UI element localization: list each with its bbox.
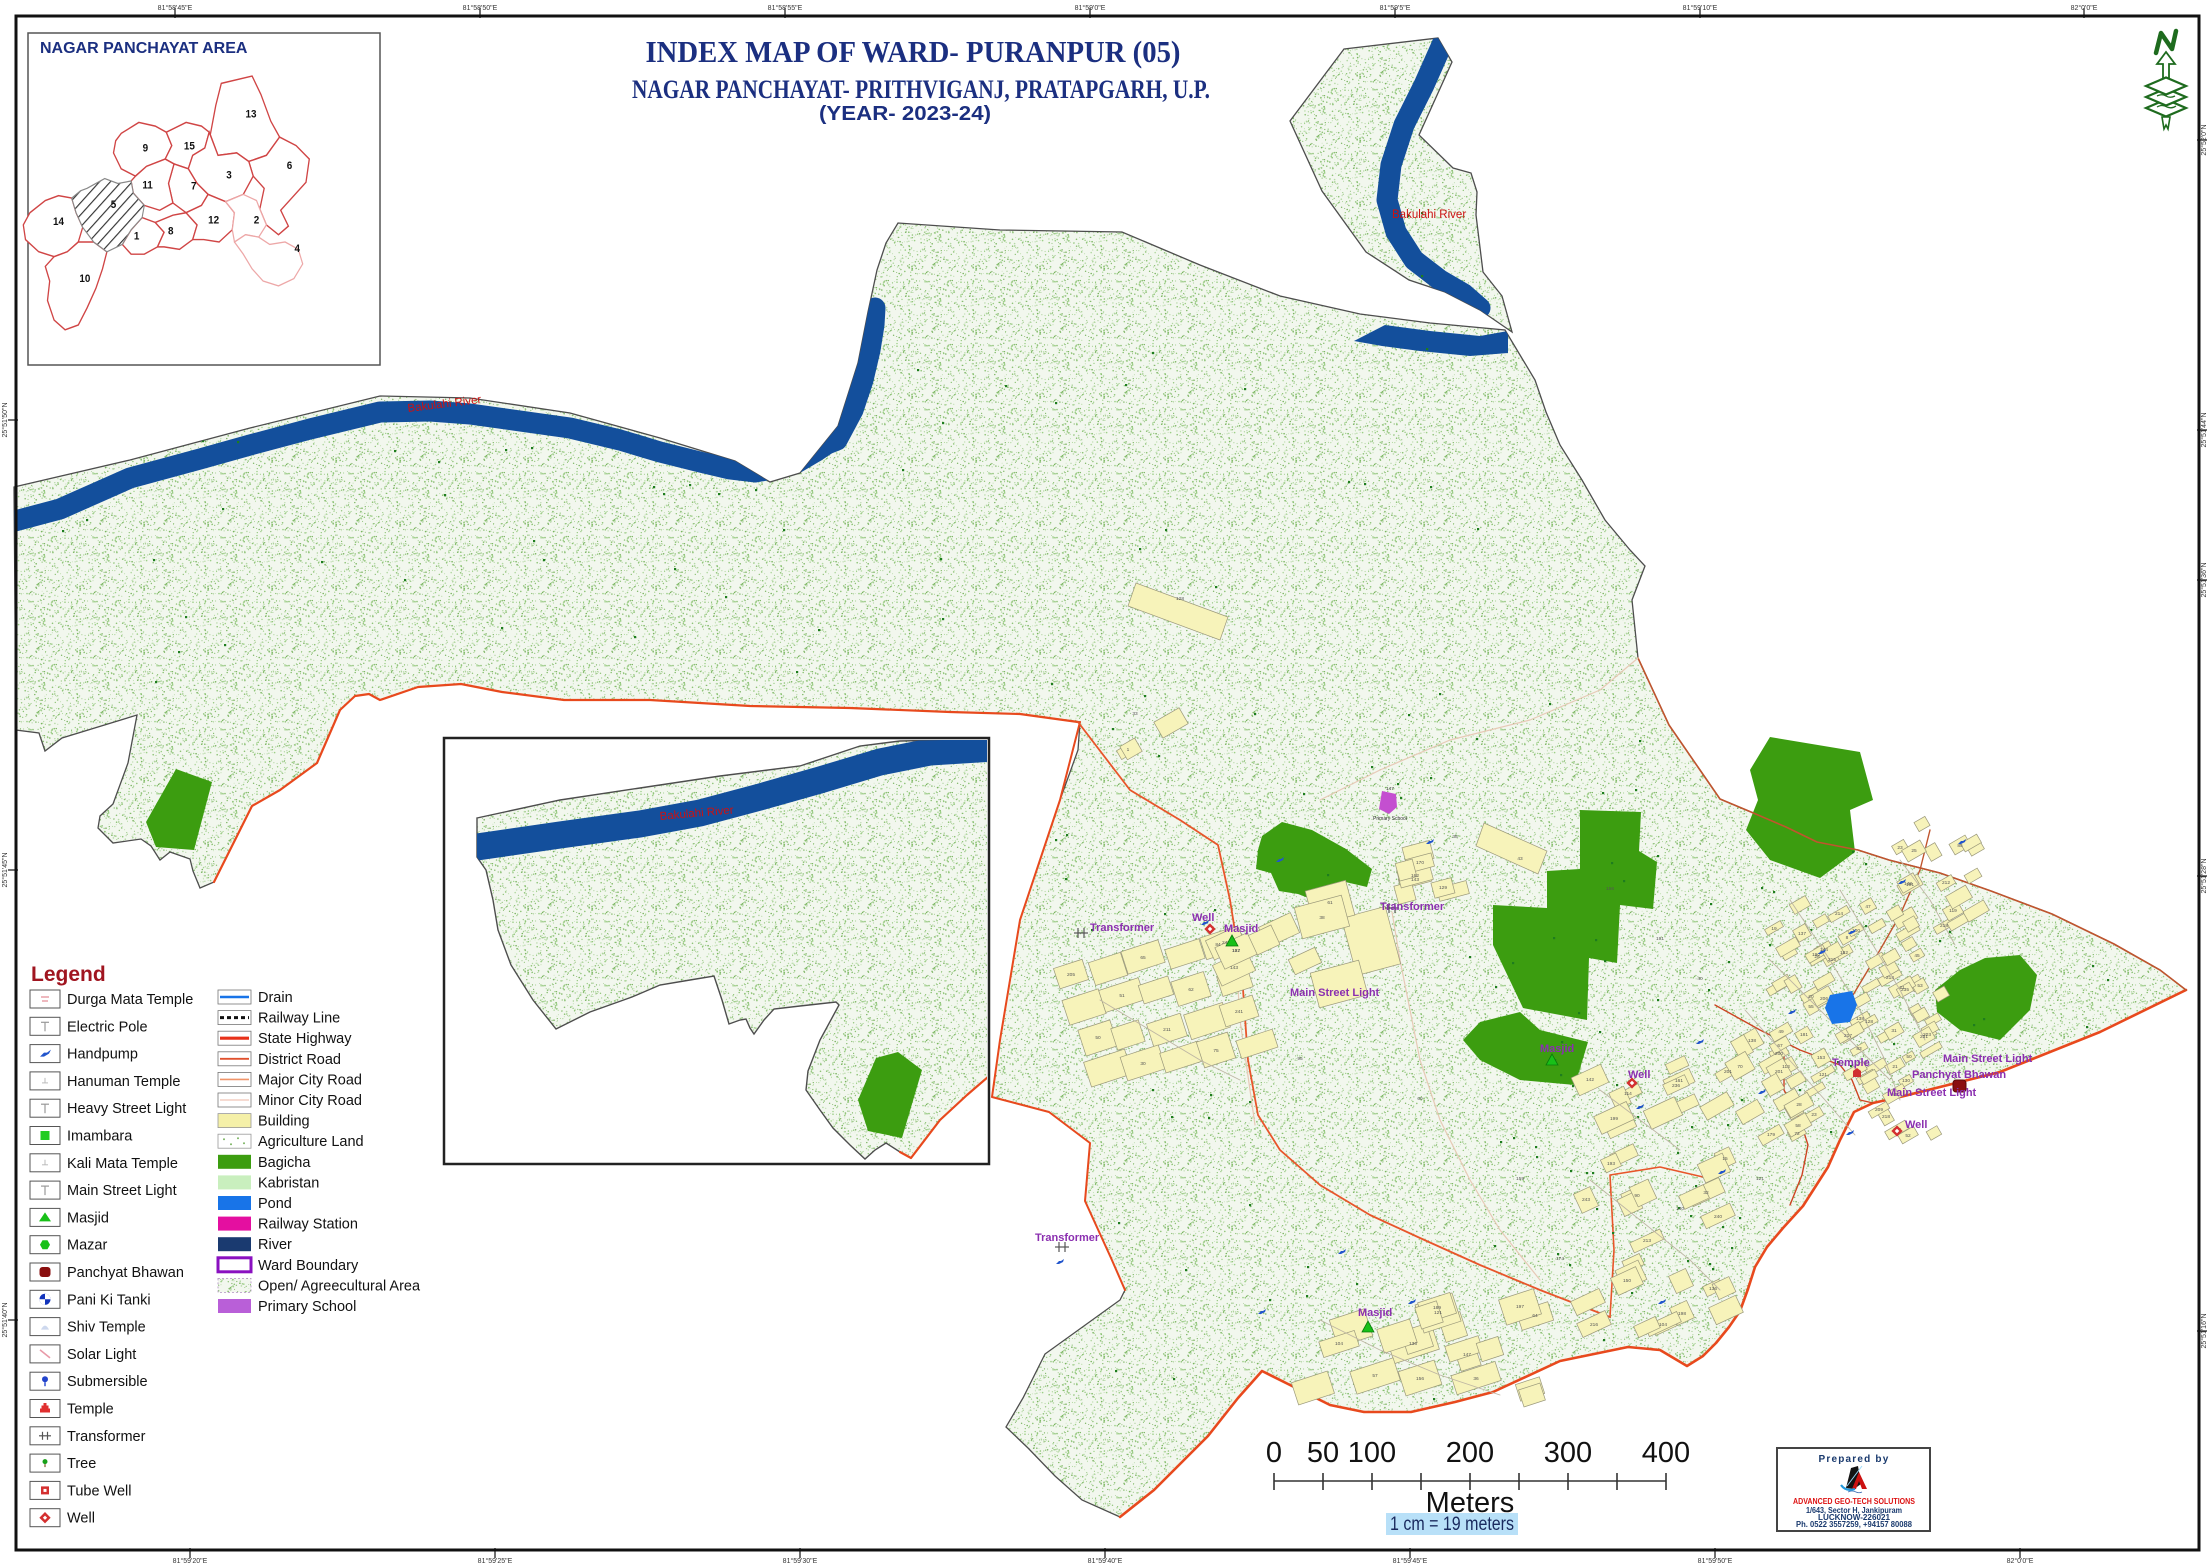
- svg-text:Submersible: Submersible: [67, 1374, 148, 1390]
- svg-text:81°59'20"E: 81°59'20"E: [173, 1557, 208, 1564]
- svg-text:NAGAR PANCHAYAT AREA: NAGAR PANCHAYAT AREA: [40, 40, 248, 57]
- svg-text:INDEX MAP OF WARD- PURANPUR (0: INDEX MAP OF WARD- PURANPUR (05): [646, 34, 1181, 69]
- svg-text:23: 23: [1897, 845, 1903, 851]
- svg-text:52: 52: [1905, 1133, 1911, 1139]
- svg-text:147: 147: [1386, 786, 1394, 792]
- svg-text:61: 61: [1327, 900, 1333, 906]
- svg-text:157: 157: [1232, 948, 1240, 954]
- svg-text:23: 23: [1811, 1112, 1817, 1118]
- svg-text:198: 198: [1678, 1311, 1686, 1317]
- svg-text:38: 38: [1452, 834, 1458, 840]
- svg-text:189: 189: [1433, 1305, 1441, 1311]
- svg-text:Well: Well: [67, 1511, 95, 1527]
- svg-text:193: 193: [1607, 1161, 1615, 1167]
- svg-text:128: 128: [1176, 596, 1184, 602]
- svg-text:20: 20: [1808, 994, 1814, 1000]
- svg-text:136: 136: [1709, 1286, 1717, 1292]
- svg-text:153: 153: [1817, 1055, 1825, 1061]
- svg-text:1 cm = 19 meters: 1 cm = 19 meters: [1390, 1514, 1514, 1535]
- svg-text:43: 43: [1517, 856, 1523, 862]
- svg-text:Masjid: Masjid: [67, 1210, 109, 1226]
- svg-text:Agriculture Land: Agriculture Land: [258, 1134, 364, 1150]
- svg-text:181: 181: [1800, 1032, 1808, 1038]
- svg-text:Electric Pole: Electric Pole: [67, 1019, 148, 1035]
- svg-text:156: 156: [1606, 886, 1614, 892]
- svg-text:Hanuman Temple: Hanuman Temple: [67, 1074, 180, 1090]
- svg-text:84: 84: [1215, 942, 1221, 948]
- svg-text:243: 243: [1582, 1197, 1590, 1203]
- svg-text:47: 47: [1865, 904, 1871, 910]
- svg-text:58: 58: [1795, 1123, 1801, 1129]
- svg-text:143: 143: [1230, 965, 1238, 971]
- svg-text:104: 104: [1659, 1322, 1667, 1328]
- svg-text:62: 62: [1188, 987, 1194, 993]
- svg-text:8: 8: [168, 226, 174, 238]
- svg-text:0: 0: [1266, 1437, 1282, 1469]
- svg-text:25°51'50"N: 25°51'50"N: [1, 402, 9, 437]
- svg-text:50: 50: [1307, 1437, 1339, 1469]
- svg-text:Masjid: Masjid: [1224, 923, 1258, 935]
- svg-text:218: 218: [1940, 923, 1948, 929]
- svg-text:25°52'0"N: 25°52'0"N: [2200, 124, 2208, 155]
- svg-text:81°58'55"E: 81°58'55"E: [768, 4, 803, 12]
- svg-text:Heavy Street Light: Heavy Street Light: [67, 1101, 186, 1117]
- svg-text:Transformer: Transformer: [1380, 901, 1445, 913]
- svg-text:130: 130: [1902, 1078, 1910, 1084]
- svg-text:Transformer: Transformer: [1090, 922, 1155, 934]
- svg-text:10: 10: [79, 274, 90, 286]
- svg-text:28: 28: [1796, 1102, 1802, 1108]
- svg-text:212: 212: [1942, 880, 1950, 886]
- svg-text:70: 70: [1737, 1064, 1743, 1070]
- svg-text:121: 121: [1819, 1072, 1827, 1078]
- svg-text:81°59'50"E: 81°59'50"E: [1698, 1557, 1733, 1564]
- svg-text:21: 21: [1892, 1064, 1898, 1070]
- svg-text:Main Street Light: Main Street Light: [1943, 1053, 2033, 1065]
- svg-text:205: 205: [1067, 972, 1075, 978]
- svg-text:Well: Well: [1192, 912, 1214, 924]
- svg-text:90: 90: [1634, 1193, 1640, 1199]
- svg-text:65: 65: [1140, 955, 1146, 961]
- svg-text:Primary School: Primary School: [1373, 816, 1407, 822]
- svg-text:Minor City Road: Minor City Road: [258, 1093, 362, 1109]
- svg-text:64: 64: [1532, 1313, 1538, 1319]
- svg-text:Bagicha: Bagicha: [258, 1155, 311, 1171]
- svg-text:Panchyat Bhawan: Panchyat Bhawan: [67, 1265, 184, 1281]
- svg-text:216: 216: [1590, 1322, 1598, 1328]
- svg-text:Solar Light: Solar Light: [67, 1347, 136, 1363]
- svg-text:Transformer: Transformer: [1035, 1232, 1100, 1244]
- svg-text:Imambara: Imambara: [67, 1129, 133, 1145]
- svg-text:55: 55: [1808, 1004, 1814, 1010]
- svg-text:Well: Well: [1905, 1119, 1927, 1131]
- svg-text:Pond: Pond: [258, 1196, 292, 1212]
- svg-text:50: 50: [1095, 1035, 1101, 1041]
- svg-text:199: 199: [1610, 1116, 1618, 1122]
- svg-text:82°0'0"E: 82°0'0"E: [2007, 1557, 2034, 1564]
- svg-text:Mazar: Mazar: [67, 1238, 107, 1254]
- svg-text:129: 129: [1439, 885, 1447, 891]
- svg-text:25°51'44"N: 25°51'44"N: [2200, 412, 2208, 447]
- svg-text:25°51'16"N: 25°51'16"N: [2200, 1313, 2208, 1348]
- svg-text:Panchyat Bhawan: Panchyat Bhawan: [1912, 1069, 2006, 1081]
- svg-text:200: 200: [1446, 1437, 1494, 1469]
- svg-text:5: 5: [111, 199, 117, 211]
- svg-text:140: 140: [1676, 1206, 1684, 1212]
- svg-text:206: 206: [1820, 996, 1828, 1002]
- svg-text:211: 211: [1163, 1027, 1171, 1033]
- svg-text:14: 14: [53, 217, 64, 229]
- svg-text:Masjid: Masjid: [1540, 1043, 1574, 1055]
- svg-text:213: 213: [1643, 1238, 1651, 1244]
- svg-text:Kali Mata Temple: Kali Mata Temple: [67, 1156, 178, 1172]
- svg-text:241: 241: [1235, 1009, 1243, 1015]
- svg-text:25°51'45"N: 25°51'45"N: [1, 852, 9, 887]
- svg-text:81°59'30"E: 81°59'30"E: [783, 1557, 818, 1564]
- svg-text:49: 49: [1778, 1029, 1784, 1035]
- svg-text:217: 217: [1844, 1033, 1852, 1039]
- svg-text:100: 100: [1348, 1437, 1396, 1469]
- svg-text:60: 60: [1417, 1096, 1423, 1102]
- svg-text:32: 32: [1703, 1190, 1709, 1196]
- svg-text:Temple: Temple: [1832, 1057, 1870, 1069]
- svg-text:138: 138: [1856, 1016, 1864, 1022]
- svg-text:45: 45: [1914, 953, 1920, 959]
- svg-text:121: 121: [1756, 1176, 1764, 1182]
- svg-text:156: 156: [1416, 1376, 1424, 1382]
- svg-text:Drain: Drain: [258, 990, 293, 1006]
- svg-text:Main Street Light: Main Street Light: [1887, 1087, 1977, 1099]
- svg-text:11: 11: [142, 180, 153, 192]
- svg-text:197: 197: [1516, 1304, 1524, 1310]
- svg-text:Main Street Light: Main Street Light: [1290, 987, 1380, 999]
- svg-text:NAGAR PANCHAYAT- PRITHVIGANJ,: NAGAR PANCHAYAT- PRITHVIGANJ, PRATAPGARH…: [632, 75, 1210, 104]
- svg-text:81°58'45"E: 81°58'45"E: [158, 4, 193, 12]
- svg-text:191: 191: [1656, 936, 1664, 942]
- svg-text:Prepared by: Prepared by: [1818, 1454, 1889, 1465]
- svg-text:Ward Boundary: Ward Boundary: [258, 1258, 359, 1274]
- svg-text:218: 218: [1882, 1114, 1890, 1120]
- svg-text:95: 95: [1297, 1056, 1303, 1062]
- svg-text:25°51'36"N: 25°51'36"N: [2200, 562, 2208, 597]
- svg-text:75: 75: [1213, 1048, 1219, 1054]
- svg-text:236: 236: [1672, 1083, 1680, 1089]
- svg-text:Handpump: Handpump: [67, 1047, 138, 1063]
- svg-text:81°58'50"E: 81°58'50"E: [463, 4, 498, 12]
- svg-text:215: 215: [1828, 957, 1836, 963]
- svg-text:400: 400: [1642, 1437, 1690, 1469]
- svg-text:ADVANCED GEO-TECH SOLUTIONS: ADVANCED GEO-TECH SOLUTIONS: [1793, 1496, 1915, 1506]
- svg-text:Shiv Temple: Shiv Temple: [67, 1320, 146, 1336]
- svg-text:2: 2: [254, 215, 260, 227]
- svg-text:13: 13: [245, 109, 256, 121]
- svg-text:201: 201: [1775, 1069, 1783, 1075]
- svg-text:State Highway: State Highway: [258, 1031, 352, 1047]
- svg-text:15: 15: [184, 141, 195, 153]
- svg-text:83: 83: [1856, 1046, 1862, 1052]
- svg-text:104: 104: [1335, 1341, 1343, 1347]
- svg-text:Legend: Legend: [31, 963, 106, 986]
- svg-text:138: 138: [1748, 1038, 1756, 1044]
- svg-text:179: 179: [1767, 1132, 1775, 1138]
- svg-text:200: 200: [1775, 1051, 1783, 1057]
- svg-text:33: 33: [1132, 711, 1138, 717]
- svg-text:25°51'28"N: 25°51'28"N: [2200, 858, 2208, 893]
- svg-text:Temple: Temple: [67, 1402, 114, 1418]
- svg-text:40: 40: [1697, 976, 1703, 982]
- svg-text:7: 7: [191, 181, 197, 193]
- svg-text:150: 150: [1623, 1278, 1631, 1284]
- svg-text:Tube Well: Tube Well: [67, 1483, 131, 1499]
- svg-text:Kabristan: Kabristan: [258, 1175, 319, 1191]
- svg-text:174: 174: [1556, 1256, 1564, 1262]
- svg-text:River: River: [258, 1237, 292, 1253]
- svg-text:25: 25: [1911, 848, 1917, 854]
- svg-text:148: 148: [1904, 881, 1912, 887]
- svg-text:159: 159: [1516, 1176, 1524, 1182]
- svg-text:31: 31: [1891, 1028, 1897, 1034]
- svg-text:81°59'45"E: 81°59'45"E: [1393, 1557, 1428, 1564]
- svg-text:1: 1: [1127, 747, 1130, 753]
- svg-text:Masjid: Masjid: [1358, 1307, 1392, 1319]
- svg-text:30: 30: [1140, 1061, 1146, 1067]
- svg-text:Transformer: Transformer: [67, 1429, 146, 1445]
- svg-text:190: 190: [1812, 952, 1820, 958]
- svg-text:214: 214: [1886, 975, 1894, 981]
- svg-text:201: 201: [1724, 1069, 1732, 1075]
- svg-text:19: 19: [1771, 926, 1777, 932]
- svg-text:162: 162: [1411, 873, 1419, 879]
- svg-text:182: 182: [1840, 950, 1848, 956]
- svg-text:(YEAR- 2023-24): (YEAR- 2023-24): [819, 102, 991, 125]
- svg-text:81°59'5"E: 81°59'5"E: [1380, 4, 1411, 12]
- svg-text:Open/ Agreecultural Area: Open/ Agreecultural Area: [258, 1278, 421, 1294]
- svg-text:147: 147: [1463, 1352, 1471, 1358]
- svg-text:137: 137: [1798, 931, 1806, 937]
- svg-text:Railway Line: Railway Line: [258, 1011, 340, 1027]
- svg-text:300: 300: [1544, 1437, 1592, 1469]
- svg-text:136: 136: [1409, 1341, 1417, 1347]
- svg-text:81°59'0"E: 81°59'0"E: [1075, 4, 1106, 12]
- svg-text:170: 170: [1416, 860, 1424, 866]
- svg-text:114: 114: [1624, 1091, 1632, 1097]
- svg-text:82°0'0"E: 82°0'0"E: [2071, 4, 2098, 12]
- svg-text:50: 50: [1906, 1054, 1912, 1060]
- svg-text:235: 235: [1901, 987, 1909, 993]
- svg-text:Building: Building: [258, 1114, 310, 1130]
- svg-text:81°59'40"E: 81°59'40"E: [1088, 1557, 1123, 1564]
- svg-text:1: 1: [134, 231, 140, 243]
- svg-text:67: 67: [1777, 1043, 1783, 1049]
- svg-text:119: 119: [1949, 908, 1957, 914]
- svg-text:36: 36: [1473, 1376, 1479, 1382]
- svg-text:Bakulahi River: Bakulahi River: [1392, 209, 1466, 221]
- svg-text:209: 209: [1875, 1107, 1883, 1113]
- svg-text:Major City Road: Major City Road: [258, 1072, 362, 1088]
- svg-text:Tree: Tree: [67, 1456, 96, 1472]
- svg-text:25°51'40"N: 25°51'40"N: [1, 1302, 9, 1337]
- svg-text:72: 72: [1794, 1131, 1800, 1137]
- svg-text:12: 12: [208, 215, 219, 227]
- svg-text:Main Street Light: Main Street Light: [67, 1183, 177, 1199]
- svg-text:81°59'10"E: 81°59'10"E: [1683, 4, 1718, 12]
- svg-text:81°59'25"E: 81°59'25"E: [478, 1557, 513, 1564]
- svg-text:3: 3: [226, 170, 232, 182]
- svg-text:57: 57: [1372, 1373, 1378, 1379]
- svg-text:Primary School: Primary School: [258, 1299, 356, 1315]
- svg-text:Durga Mata Temple: Durga Mata Temple: [67, 992, 193, 1008]
- svg-text:Well: Well: [1628, 1069, 1650, 1081]
- svg-text:Pani Ki Tanki: Pani Ki Tanki: [67, 1292, 151, 1308]
- svg-text:214: 214: [1835, 911, 1843, 917]
- svg-text:51: 51: [1119, 993, 1125, 999]
- svg-text:15: 15: [1722, 1156, 1728, 1162]
- svg-text:231: 231: [1920, 1034, 1928, 1040]
- svg-text:128: 128: [1865, 1019, 1873, 1025]
- svg-text:4: 4: [294, 243, 300, 255]
- svg-text:9: 9: [143, 143, 149, 155]
- svg-text:6: 6: [287, 160, 293, 172]
- svg-text:Ph. 0522 3557259, +94157 80088: Ph. 0522 3557259, +94157 80088: [1796, 1520, 1913, 1529]
- svg-text:District Road: District Road: [258, 1052, 341, 1068]
- svg-text:53: 53: [1917, 983, 1923, 989]
- svg-text:240: 240: [1714, 1214, 1722, 1220]
- svg-text:Railway Station: Railway Station: [258, 1217, 358, 1233]
- svg-text:142: 142: [1586, 1077, 1594, 1083]
- svg-text:113: 113: [1782, 1064, 1790, 1070]
- svg-text:8: 8: [1846, 935, 1849, 941]
- svg-text:38: 38: [1319, 915, 1325, 921]
